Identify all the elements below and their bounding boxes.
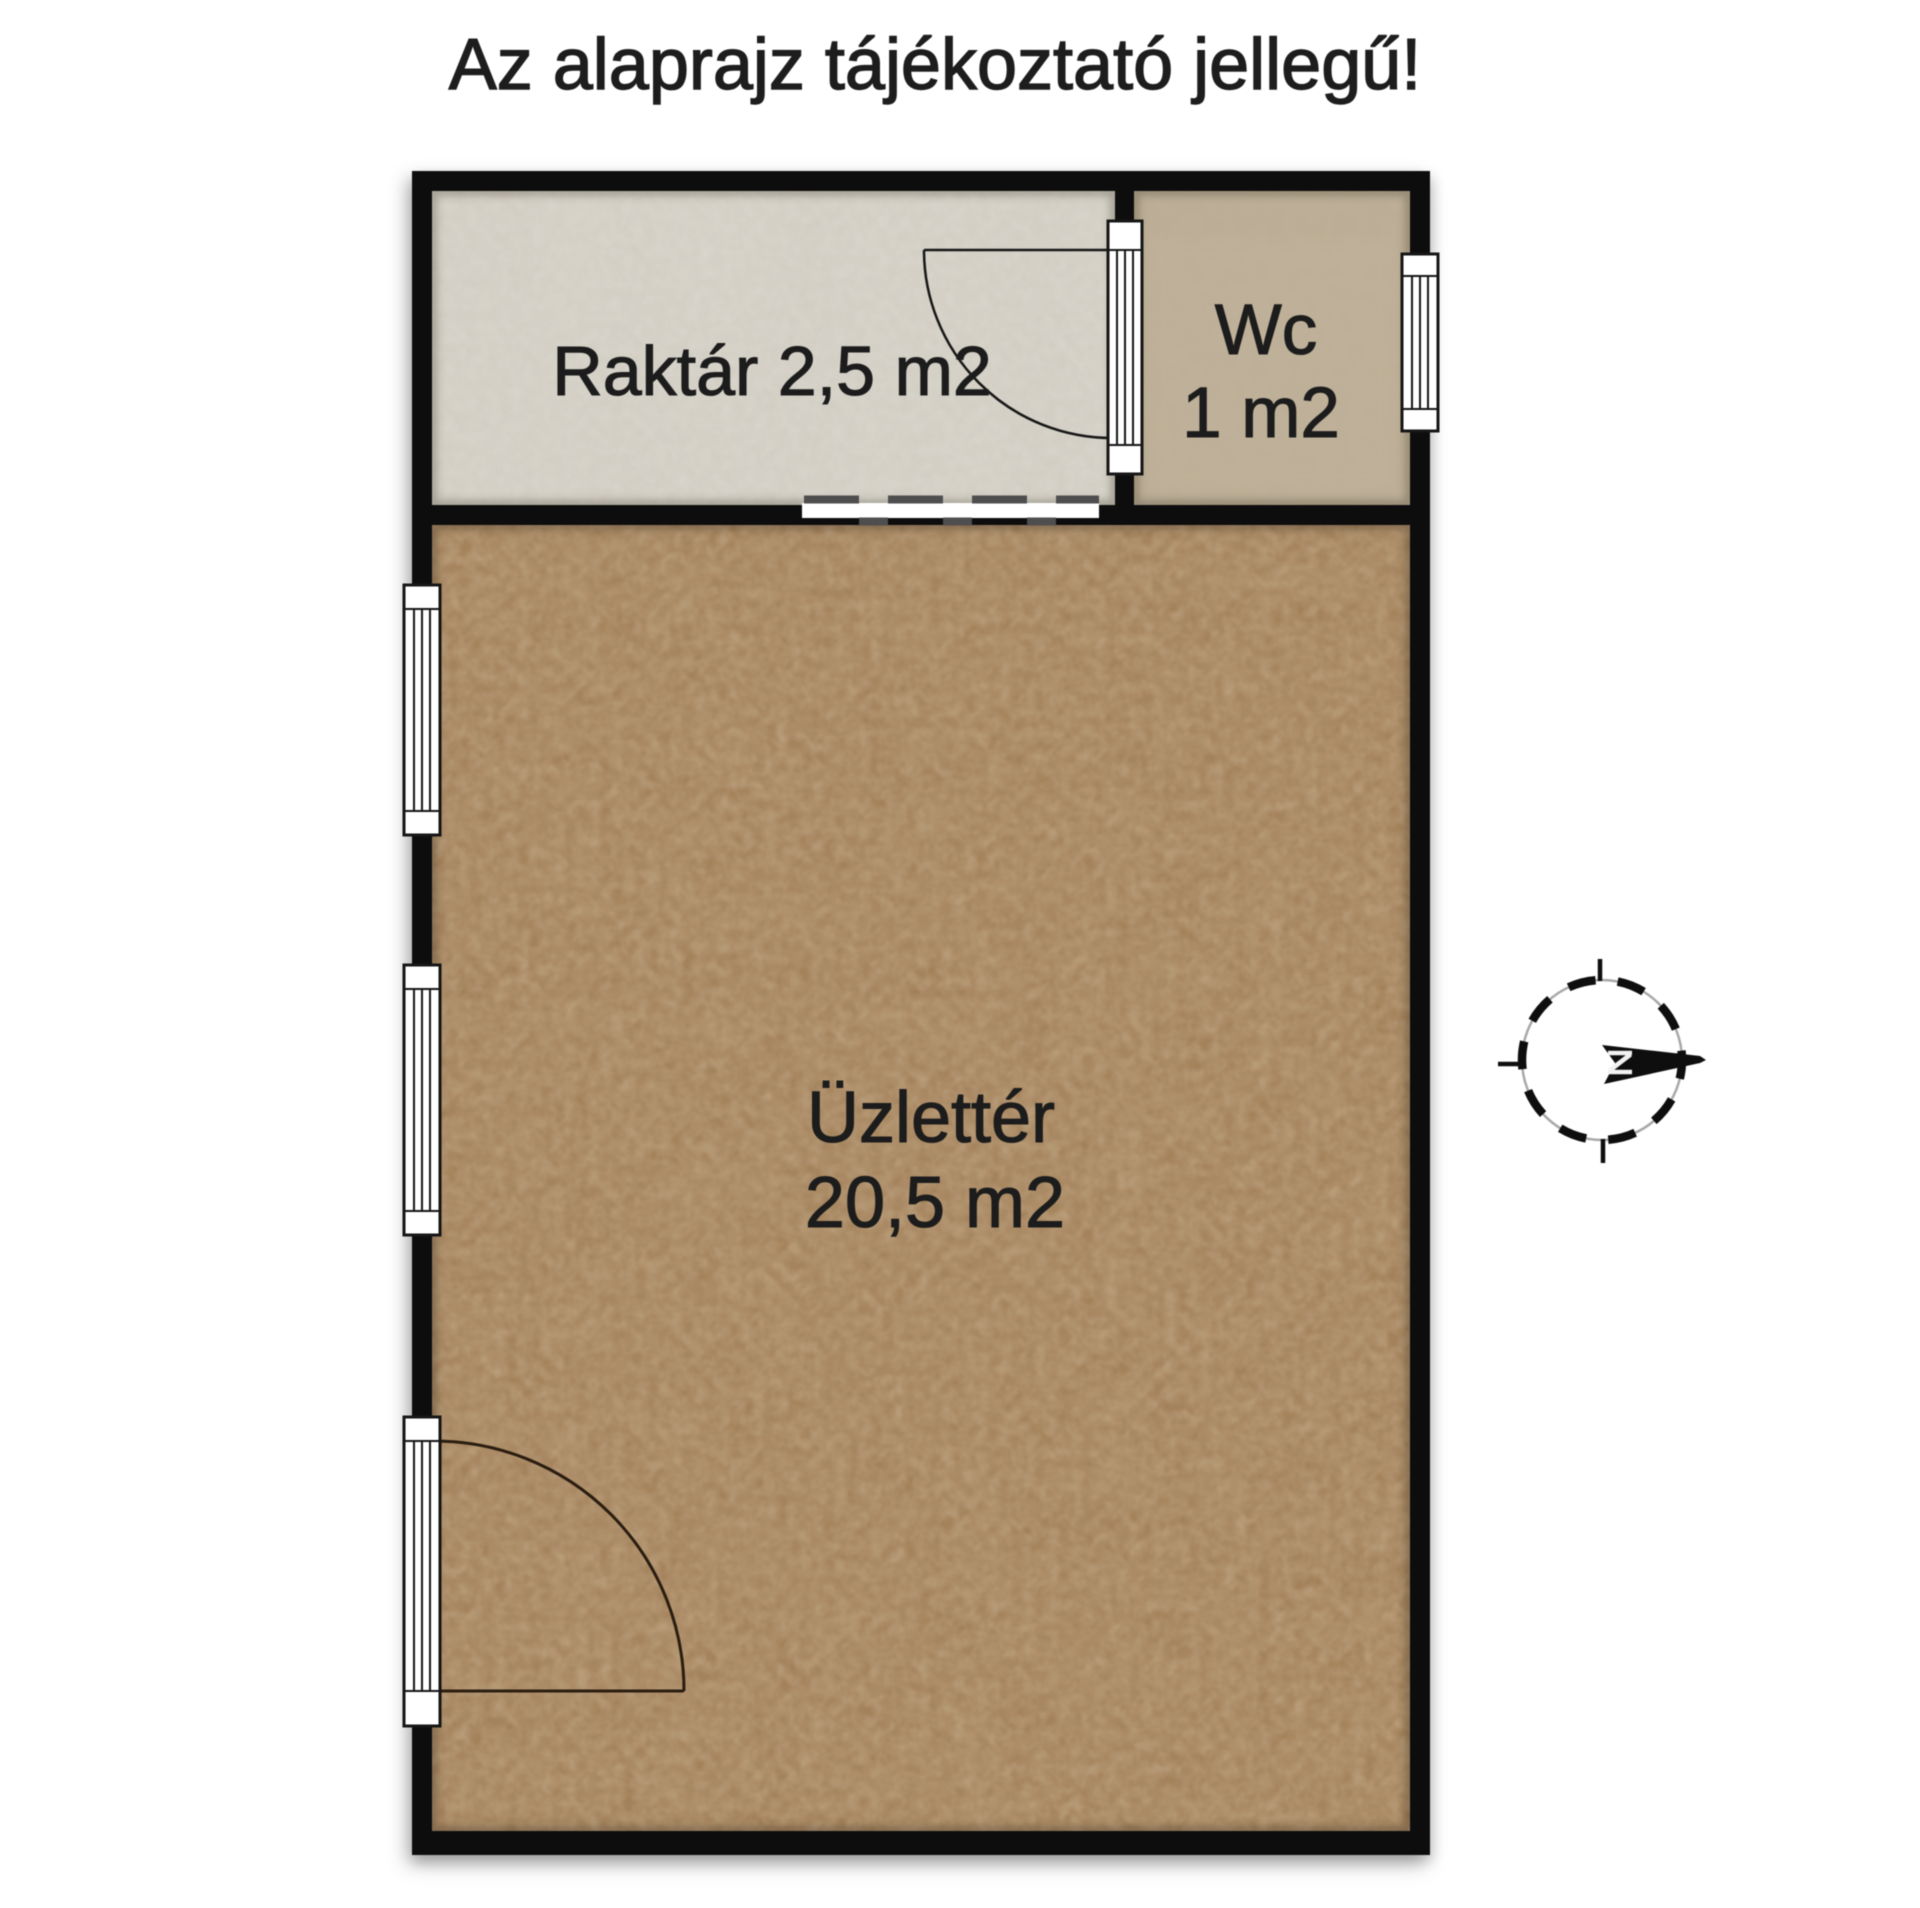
- svg-text:20,5 m2: 20,5 m2: [805, 1163, 1065, 1243]
- svg-text:Raktár 2,5 m2: Raktár 2,5 m2: [552, 332, 992, 410]
- svg-text:1 m2: 1 m2: [1182, 374, 1340, 453]
- svg-text:Az alaprajz tájékoztató jelleg: Az alaprajz tájékoztató jellegű!: [449, 25, 1422, 105]
- svg-text:Üzlettér: Üzlettér: [807, 1078, 1055, 1158]
- svg-text:Wc: Wc: [1215, 291, 1318, 370]
